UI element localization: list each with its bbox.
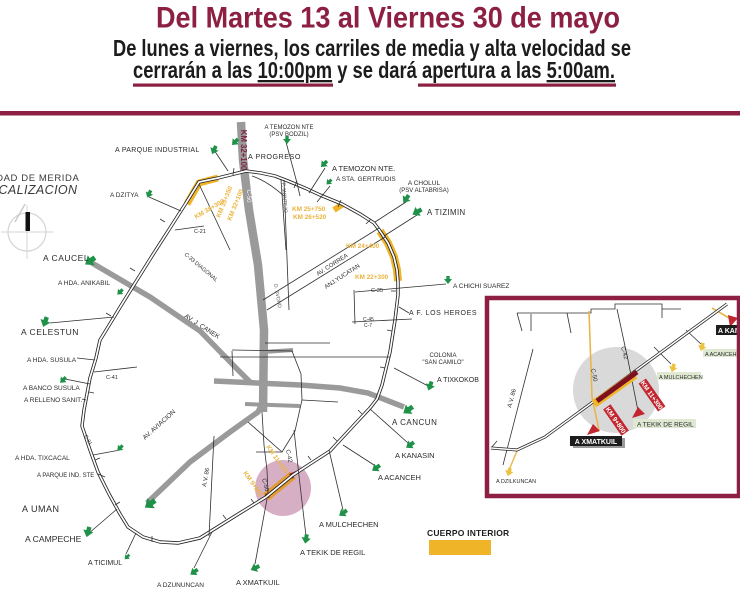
- svg-text:A PARQUE IND. STE: A PARQUE IND. STE: [37, 473, 94, 479]
- svg-text:A XMATKUIL: A XMATKUIL: [575, 439, 618, 446]
- svg-text:A ACANCEH: A ACANCEH: [705, 352, 737, 358]
- svg-text:A TICIMUL: A TICIMUL: [88, 560, 122, 567]
- svg-text:A RELLENO SANIT.: A RELLENO SANIT.: [24, 397, 82, 404]
- svg-text:O. SVOND: O. SVOND: [272, 283, 282, 309]
- svg-text:A PROGRESO: A PROGRESO: [248, 152, 301, 161]
- svg-text:A MULCHECHEN: A MULCHECHEN: [319, 520, 379, 529]
- svg-text:C-33 DIAGONAL: C-33 DIAGONAL: [183, 252, 219, 284]
- svg-text:A CANCUN: A CANCUN: [392, 418, 437, 427]
- svg-text:A HDA. ANIKABIL: A HDA. ANIKABIL: [58, 280, 110, 287]
- svg-text:A XMATKUIL: A XMATKUIL: [236, 578, 280, 587]
- svg-text:A F. LOS HEROES: A F. LOS HEROES: [409, 310, 477, 317]
- svg-text:A CAUCEL: A CAUCEL: [43, 253, 89, 263]
- svg-text:Del Martes 13 al Viernes 30 de: Del Martes 13 al Viernes 30 de mayo: [156, 2, 620, 35]
- svg-text:P. MONTEJO: P. MONTEJO: [280, 183, 288, 213]
- svg-text:cerrarán a las 10:00pm y se da: cerrarán a las 10:00pm y se dará apertur…: [133, 57, 615, 83]
- svg-text:COLONIA: COLONIA: [429, 353, 456, 359]
- svg-text:A DZUNUNCAN: A DZUNUNCAN: [157, 582, 204, 589]
- svg-text:A DZILKUNCAN: A DZILKUNCAN: [496, 479, 536, 485]
- svg-text:A.V. 86: A.V. 86: [202, 467, 211, 488]
- svg-text:KM 22+300: KM 22+300: [355, 274, 389, 281]
- svg-text:A BANCO SUSULA: A BANCO SUSULA: [23, 385, 80, 392]
- svg-text:A UMAN: A UMAN: [22, 504, 60, 514]
- svg-text:A STA. GERTRUDIS: A STA. GERTRUDIS: [336, 176, 396, 183]
- svg-text:A HDA. TIXCACAL: A HDA. TIXCACAL: [15, 455, 70, 462]
- svg-text:AV. AVIACION: AV. AVIACION: [142, 408, 178, 441]
- svg-text:A TEMOZON NTE: A TEMOZON NTE: [265, 125, 314, 131]
- svg-text:CUERPO INTERIOR: CUERPO INTERIOR: [427, 528, 509, 538]
- svg-text:(PSV BODZIL): (PSV BODZIL): [269, 132, 308, 138]
- svg-text:C-41: C-41: [106, 375, 118, 381]
- svg-text:A TIZIMIN: A TIZIMIN: [427, 208, 466, 217]
- svg-text:LOCALIZACION: LOCALIZACION: [0, 183, 78, 197]
- svg-text:A KAN: A KAN: [718, 328, 740, 335]
- svg-text:(PSV ALTABRISA): (PSV ALTABRISA): [399, 188, 448, 194]
- svg-text:A ACANCEH: A ACANCEH: [378, 473, 421, 482]
- svg-text:KM 24+400: KM 24+400: [346, 243, 380, 250]
- svg-text:"SAN CAMILO": "SAN CAMILO": [422, 360, 463, 366]
- svg-text:A TEKIK DE REGIL: A TEKIK DE REGIL: [637, 422, 694, 429]
- svg-text:C-35: C-35: [371, 288, 383, 294]
- svg-text:C-7: C-7: [364, 323, 372, 329]
- svg-text:C-81: C-81: [82, 434, 93, 447]
- svg-text:A PARQUE INDUSTRIAL: A PARQUE INDUSTRIAL: [115, 147, 200, 154]
- svg-text:A HDA. SUSULA: A HDA. SUSULA: [27, 357, 77, 364]
- svg-text:A CELESTUN: A CELESTUN: [21, 327, 79, 337]
- svg-text:A TEMOZON NTE.: A TEMOZON NTE.: [332, 164, 395, 173]
- svg-text:A CHICHI SUAREZ: A CHICHI SUAREZ: [453, 283, 509, 290]
- svg-text:A KANASIN: A KANASIN: [395, 451, 435, 460]
- svg-text:A MULCHECHEN: A MULCHECHEN: [659, 375, 703, 381]
- svg-text:KM 25+750: KM 25+750: [292, 206, 326, 213]
- svg-text:A CAMPECHE: A CAMPECHE: [25, 534, 82, 544]
- svg-text:KM 32+100: KM 32+100: [239, 130, 248, 171]
- svg-text:C-50: C-50: [245, 189, 251, 203]
- svg-text:A DZITYA: A DZITYA: [110, 192, 139, 199]
- svg-text:KM 26+520: KM 26+520: [293, 214, 327, 221]
- svg-text:C-21: C-21: [194, 229, 206, 235]
- svg-text:A TIXKOKOB: A TIXKOKOB: [437, 377, 479, 384]
- svg-text:A CHOLUL: A CHOLUL: [408, 180, 441, 187]
- svg-text:A TEKIK DE REGIL: A TEKIK DE REGIL: [300, 548, 365, 557]
